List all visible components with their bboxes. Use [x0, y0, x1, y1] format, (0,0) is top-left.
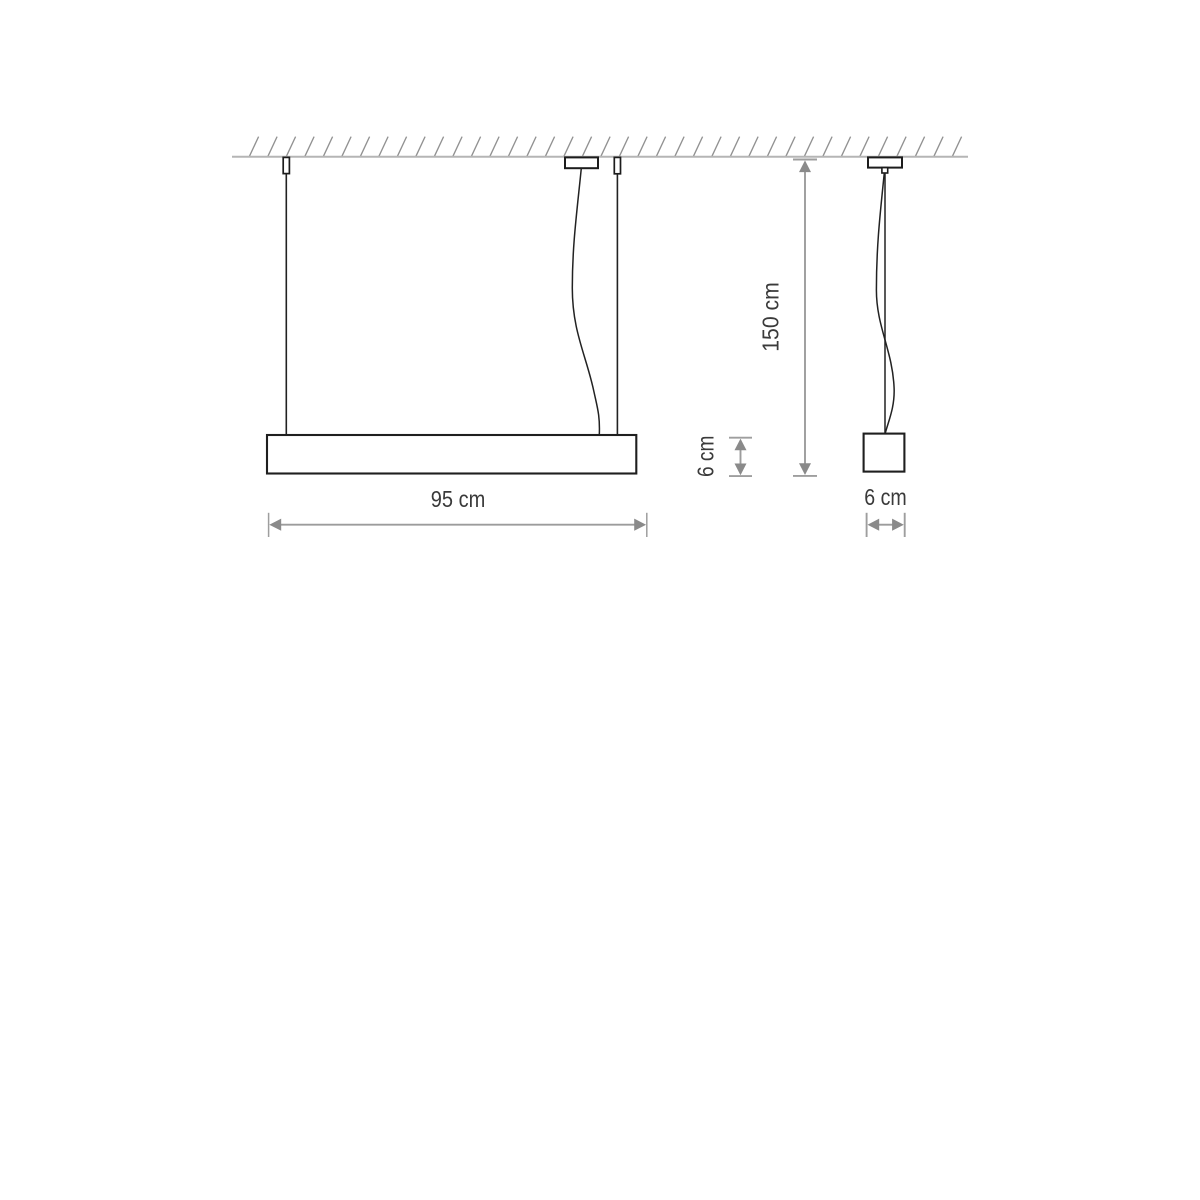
- svg-text:6 cm: 6 cm: [864, 484, 907, 510]
- svg-text:150 cm: 150 cm: [758, 282, 784, 352]
- svg-text:95 cm: 95 cm: [431, 486, 486, 512]
- svg-text:6 cm: 6 cm: [693, 436, 719, 478]
